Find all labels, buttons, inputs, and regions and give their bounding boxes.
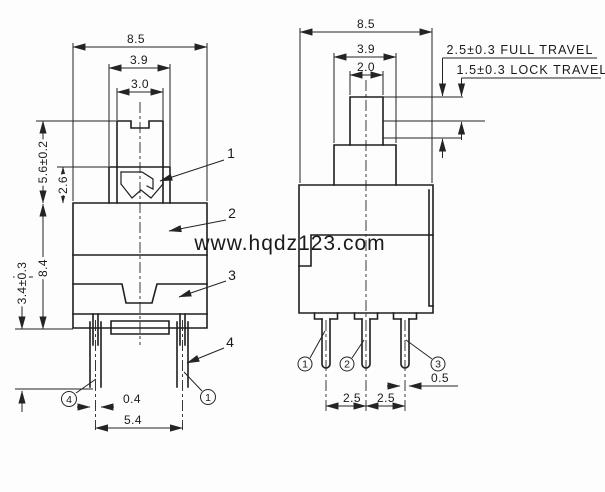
- front-view: 8.5 3.9 3.0 5.6±0.2 2.6 8.4 3.4±0.3 0.4 …: [13, 32, 236, 430]
- side-dimension-lines: [298, 28, 601, 406]
- note-full-travel: 2.5±0.3 FULL TRAVEL: [446, 43, 593, 57]
- pin-circle-right-label: 1: [205, 392, 211, 404]
- callout-1: 1: [227, 145, 235, 161]
- front-dim-flange-height: 2.6: [56, 176, 70, 194]
- callout-2: 2: [228, 205, 236, 221]
- front-dim-cap-width: 3.9: [130, 53, 148, 67]
- front-dim-pin-span: 5.4: [124, 413, 142, 427]
- callout-4: 4: [226, 334, 234, 350]
- side-dim-pin-pitch-left: 2.5: [343, 391, 361, 405]
- pin-circle-1-label: 1: [302, 359, 308, 371]
- pin-circle-left-label: 4: [66, 394, 72, 406]
- front-dim-width: 8.5: [127, 32, 145, 46]
- front-dim-pin-width: 0.4: [123, 392, 141, 406]
- front-view-outline: [73, 121, 207, 387]
- pin-circle-3-label: 3: [435, 359, 441, 371]
- front-lock-cam-detail: [121, 172, 163, 198]
- pin-circle-2-label: 2: [344, 359, 350, 371]
- side-dim-stem-width: 2.0: [357, 60, 375, 74]
- side-dim-pin-width: 0.5: [431, 371, 449, 385]
- side-dim-width: 8.5: [357, 17, 375, 31]
- front-dim-stem-width: 3.0: [131, 77, 149, 91]
- front-dim-stem-height: 5.6±0.2: [36, 141, 50, 184]
- side-view: 8.5 3.9 2.0 2.5±0.3 FULL TRAVEL 1.5±0.3 …: [298, 17, 605, 412]
- technical-drawing-page: www.hqdz123.com: [0, 0, 605, 492]
- note-lock-travel: 1.5±0.3 LOCK TRAVEL: [457, 63, 605, 77]
- side-dim-cap-width: 3.9: [357, 42, 375, 56]
- front-dim-body-height: 8.4: [36, 259, 50, 277]
- side-dim-pin-pitch-right: 2.5: [377, 391, 395, 405]
- front-dim-lower-height: 3.4±0.3: [15, 262, 29, 305]
- switch-dimension-drawing: www.hqdz123.com: [0, 0, 605, 492]
- callout-3: 3: [228, 267, 236, 283]
